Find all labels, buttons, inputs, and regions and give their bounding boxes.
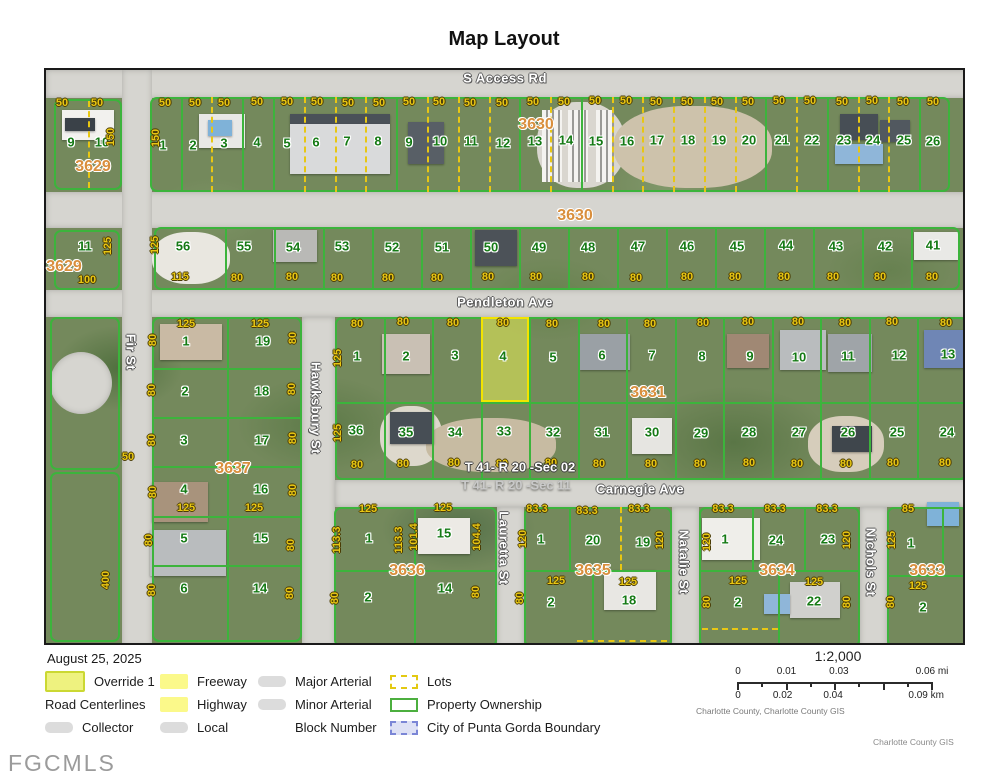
lot-line: [384, 317, 386, 480]
legend-swatch-override: [45, 671, 85, 692]
lot-line: [334, 570, 497, 572]
lot-line: [519, 97, 521, 192]
map-canvas: [44, 68, 965, 645]
lot-dashed-line: [673, 97, 675, 192]
legend-swatch-freeway: [160, 674, 188, 689]
lot-dashed-line: [888, 97, 890, 192]
lot-line: [578, 317, 580, 480]
highlighted-lot: [481, 317, 529, 402]
lot-line: [919, 97, 921, 192]
scale-tick: [858, 682, 860, 687]
lot-dashed-line: [612, 97, 614, 192]
legend-column: LotsProperty OwnershipCity of Punta Gord…: [390, 670, 605, 739]
scale-label-km: 0.09 km: [908, 690, 944, 701]
lot-line: [581, 97, 583, 192]
map-credit: Charlotte County GIS: [873, 737, 954, 747]
map-layout-page: Map Layout 91012345678910111213141516171…: [0, 0, 1008, 778]
scale-label-km: 0.04: [823, 690, 842, 701]
legend-item: Highway: [160, 693, 258, 716]
scale-label-km: 0: [735, 690, 741, 701]
scale-label-mi: 0: [735, 666, 741, 677]
lot-line: [778, 570, 780, 645]
road-surface: [302, 317, 335, 645]
lot-line: [752, 507, 754, 570]
lot-line: [242, 97, 244, 192]
parcel-outline: [50, 472, 120, 642]
legend-item: Minor Arterial: [258, 693, 390, 716]
legend-label: Major Arterial: [295, 674, 372, 689]
lot-line: [396, 97, 398, 192]
legend-label: Collector: [82, 720, 133, 735]
scale-tick: [810, 682, 812, 687]
road-surface: [497, 507, 524, 645]
lot-dashed-line: [489, 97, 491, 192]
road-surface: [335, 480, 965, 507]
lot-line: [152, 417, 302, 419]
parcel-outline: [524, 507, 672, 645]
legend-item: Property Ownership: [390, 693, 605, 716]
lot-line: [715, 227, 717, 290]
legend-swatch-boundary: [390, 721, 418, 735]
legend-swatch-highway: [160, 697, 188, 712]
map-attribution: Charlotte County, Charlotte County GIS: [696, 706, 845, 716]
lot-dashed-line: [704, 97, 706, 192]
legend-swatch-road: [45, 722, 73, 733]
lot-line: [273, 97, 275, 192]
lot-line: [617, 227, 619, 290]
scale-ratio: 1:2,000: [728, 648, 948, 664]
legend-swatch-ownership: [390, 698, 418, 712]
lot-line: [813, 227, 815, 290]
legend-label: Lots: [427, 674, 452, 689]
scale-label-mi: 0.01: [777, 666, 796, 677]
lot-line: [765, 97, 767, 192]
lot-line: [335, 402, 965, 404]
road-surface: [46, 192, 965, 228]
lot-dashed-line: [620, 507, 622, 570]
map-date: August 25, 2025: [47, 651, 142, 666]
scale-tick: [737, 682, 739, 690]
lot-dashed-line: [427, 97, 429, 192]
lot-line: [942, 507, 944, 575]
lot-line: [699, 570, 860, 572]
lot-line: [869, 317, 871, 480]
scale-label-mi: 0.06 mi: [916, 666, 949, 677]
scale-tick: [883, 682, 885, 690]
lot-line: [524, 570, 672, 572]
scale-label-mi: 0.03: [829, 666, 848, 677]
lot-line: [568, 227, 570, 290]
legend-label: Road Centerlines: [45, 697, 145, 712]
legend-item: Override 1: [45, 670, 160, 693]
road-surface: [46, 290, 965, 317]
lot-line: [152, 516, 302, 518]
legend: Override 1Road CenterlinesCollectorFreew…: [45, 670, 605, 739]
lot-line: [827, 97, 829, 192]
lot-line: [911, 227, 913, 290]
legend-column: FreewayHighwayLocal: [160, 670, 258, 739]
legend-label: Local: [197, 720, 228, 735]
lot-dashed-line: [458, 97, 460, 192]
lot-line: [470, 227, 472, 290]
lot-dashed-line: [365, 97, 367, 192]
lot-dashed-line: [577, 640, 667, 642]
lot-line: [764, 227, 766, 290]
parcel-outline: [50, 317, 120, 470]
lot-line: [862, 227, 864, 290]
legend-item: Major Arterial: [258, 670, 390, 693]
legend-item: Collector: [45, 716, 160, 739]
legend-swatch-road: [160, 722, 188, 733]
lot-line: [917, 317, 919, 480]
lot-line: [723, 317, 725, 480]
road-surface: [122, 70, 152, 645]
legend-item: Local: [160, 716, 258, 739]
lot-line: [432, 317, 434, 480]
scale-tick: [761, 682, 763, 687]
legend-item: Block Number: [258, 716, 390, 739]
parcel-outline: [54, 230, 120, 290]
scale-label-km: 0.02: [773, 690, 792, 701]
lot-line: [592, 570, 594, 645]
lot-dashed-line: [858, 97, 860, 192]
legend-swatch-road: [258, 676, 286, 687]
scale-tick: [907, 682, 909, 687]
lot-line: [152, 466, 302, 468]
lot-line: [274, 227, 276, 290]
lot-line: [227, 317, 229, 642]
lot-line: [626, 317, 628, 480]
lot-dashed-line: [735, 97, 737, 192]
lot-line: [181, 97, 183, 192]
lot-dashed-line: [550, 97, 552, 192]
lot-line: [772, 317, 774, 480]
legend-spacer: [258, 723, 286, 733]
lot-line: [421, 227, 423, 290]
legend-item: Freeway: [160, 670, 258, 693]
lot-line: [887, 575, 965, 577]
lot-dashed-line: [796, 97, 798, 192]
legend-swatch-lots: [390, 675, 418, 689]
road-surface: [672, 507, 699, 645]
lot-line: [804, 507, 806, 570]
lot-line: [323, 227, 325, 290]
lot-line: [569, 507, 571, 570]
lot-dashed-line: [211, 97, 213, 192]
lot-line: [152, 368, 302, 370]
lot-line: [666, 227, 668, 290]
legend-label: City of Punta Gorda Boundary: [427, 720, 600, 735]
page-title: Map Layout: [0, 28, 1008, 51]
legend-label: Override 1: [94, 674, 155, 689]
lot-line: [225, 227, 227, 290]
lot-dashed-line: [642, 97, 644, 192]
lot-line: [372, 227, 374, 290]
scale-tick: [931, 682, 933, 690]
lot-line: [414, 507, 416, 645]
scale-tick: [834, 682, 836, 690]
legend-column: Override 1Road CenterlinesCollector: [45, 670, 160, 739]
lot-dashed-line: [88, 101, 90, 188]
lot-line: [675, 317, 677, 480]
legend-item: Lots: [390, 670, 605, 693]
lot-dashed-line: [304, 97, 306, 192]
legend-label: Highway: [197, 697, 247, 712]
lot-line: [820, 317, 822, 480]
lot-dashed-line: [702, 628, 778, 630]
legend-item: Road Centerlines: [45, 693, 160, 716]
lot-line: [529, 317, 531, 480]
scale-tick: [786, 682, 788, 690]
legend-item: City of Punta Gorda Boundary: [390, 716, 605, 739]
legend-label: Minor Arterial: [295, 697, 372, 712]
road-surface: [860, 507, 887, 645]
lot-line: [519, 227, 521, 290]
legend-swatch-road: [258, 699, 286, 710]
fgcmls-logo: FGCMLS: [8, 750, 116, 777]
road-surface: [46, 70, 965, 98]
legend-label: Freeway: [197, 674, 247, 689]
lot-line: [152, 565, 302, 567]
legend-label: Property Ownership: [427, 697, 542, 712]
legend-label: Block Number: [295, 720, 377, 735]
scale-bar: 1:2,000 00.010.030.06 mi00.020.040.09 km: [728, 648, 948, 708]
lot-dashed-line: [335, 97, 337, 192]
legend-column: Major ArterialMinor ArterialBlock Number: [258, 670, 390, 739]
